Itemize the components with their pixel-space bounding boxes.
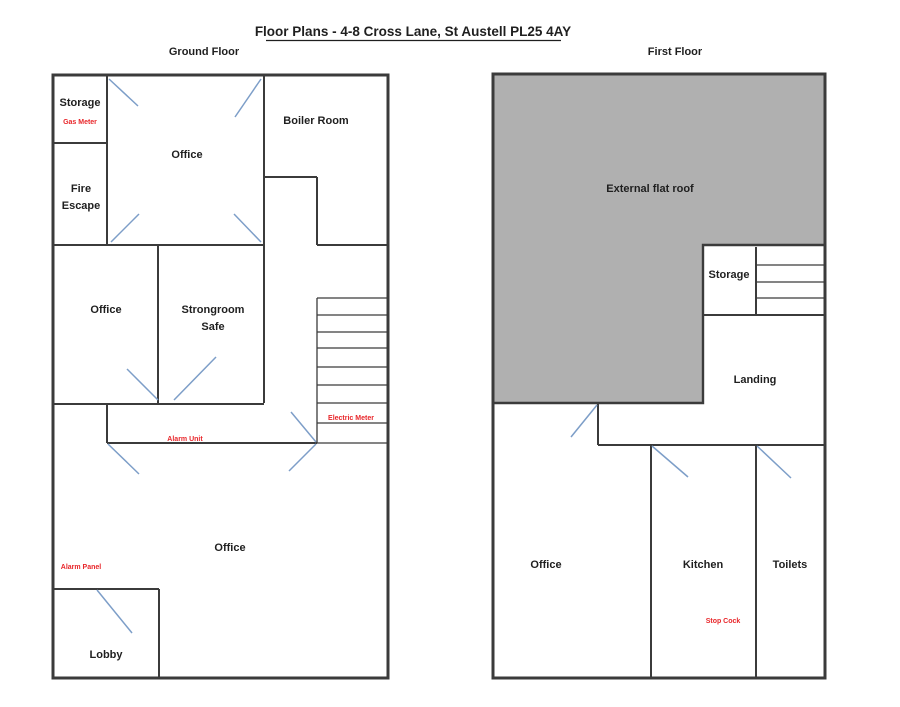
- label-alarm-panel: Alarm Panel: [61, 564, 102, 571]
- label-landing: Landing: [734, 374, 777, 386]
- ground-floor-door-swings: [97, 79, 316, 633]
- label-lobby: Lobby: [90, 649, 124, 661]
- label-fire: Fire: [71, 183, 91, 195]
- label-storage: Storage: [60, 97, 101, 109]
- label-safe: Safe: [201, 321, 224, 333]
- label-electric-meter: Electric Meter: [328, 415, 374, 422]
- label-boiler-room: Boiler Room: [283, 115, 349, 127]
- external-flat-roof-area: [493, 74, 825, 403]
- label-strongroom: Strongroom: [182, 304, 245, 316]
- floor-plan-drawing: Floor Plans - 4-8 Cross Lane, St Austell…: [0, 0, 900, 707]
- first-floor-plan: External flat roof Storage Landing Offic…: [493, 74, 825, 678]
- label-alarm-unit: Alarm Unit: [167, 436, 203, 443]
- label-kitchen: Kitchen: [683, 559, 724, 571]
- label-ff-storage: Storage: [709, 269, 750, 281]
- ground-floor-heading: Ground Floor: [169, 46, 240, 58]
- label-stop-cock: Stop Cock: [706, 618, 741, 625]
- label-gas-meter: Gas Meter: [63, 119, 97, 126]
- ground-floor-interior-walls: [53, 75, 388, 678]
- label-office-main: Office: [214, 542, 245, 554]
- page-title: Floor Plans - 4-8 Cross Lane, St Austell…: [255, 24, 571, 39]
- first-floor-heading: First Floor: [648, 46, 703, 58]
- label-escape: Escape: [62, 200, 101, 212]
- first-floor-door-swings: [571, 405, 791, 478]
- label-toilets: Toilets: [773, 559, 808, 571]
- floor-plan-document: Floor Plans - 4-8 Cross Lane, St Austell…: [0, 0, 900, 707]
- label-office-middle: Office: [90, 304, 121, 316]
- label-ff-office: Office: [530, 559, 561, 571]
- ground-floor-plan: Storage Gas Meter Fire Escape Office Boi…: [53, 75, 388, 678]
- first-floor-stairs: [756, 265, 825, 298]
- label-external-flat-roof: External flat roof: [606, 183, 694, 195]
- label-office-top: Office: [171, 149, 202, 161]
- ground-floor-outer-wall: [53, 75, 388, 678]
